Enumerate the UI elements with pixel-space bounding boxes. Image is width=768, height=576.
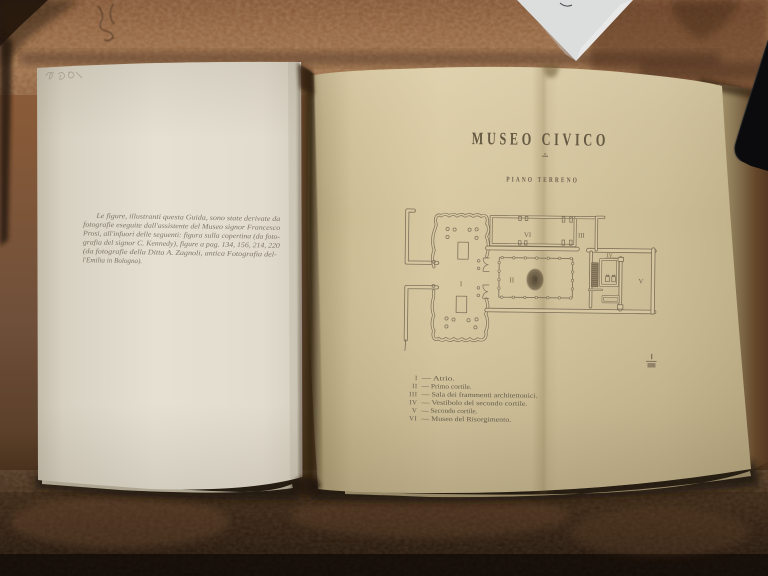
svg-text:IV: IV [409,399,417,406]
svg-text:I: I [415,375,418,382]
svg-text:VI: VI [524,232,532,239]
svg-text:— Secondo cortile.: — Secondo cortile. [420,408,478,416]
svg-text:— Primo cortile.: — Primo cortile. [421,383,473,391]
svg-text:— Museo del Risorgimento.: — Museo del Risorgimento. [420,416,512,424]
svg-text:III: III [409,391,417,398]
svg-text:— Atrio.: — Atrio. [420,375,455,382]
svg-text:l'Emilia in Bologna).: l'Emilia in Bologna). [83,256,143,265]
svg-text:— Sala dei frammenti architett: — Sala dei frammenti architettonici. [420,391,538,399]
svg-text:V: V [412,407,417,414]
svg-text:II: II [509,276,514,284]
svg-text:— Vestibolo del secondo cortil: — Vestibolo del secondo cortile. [420,399,528,407]
svg-text:V: V [638,278,643,285]
svg-text:II: II [412,383,418,390]
svg-text:VI: VI [409,416,417,423]
svg-text:III: III [578,233,586,240]
